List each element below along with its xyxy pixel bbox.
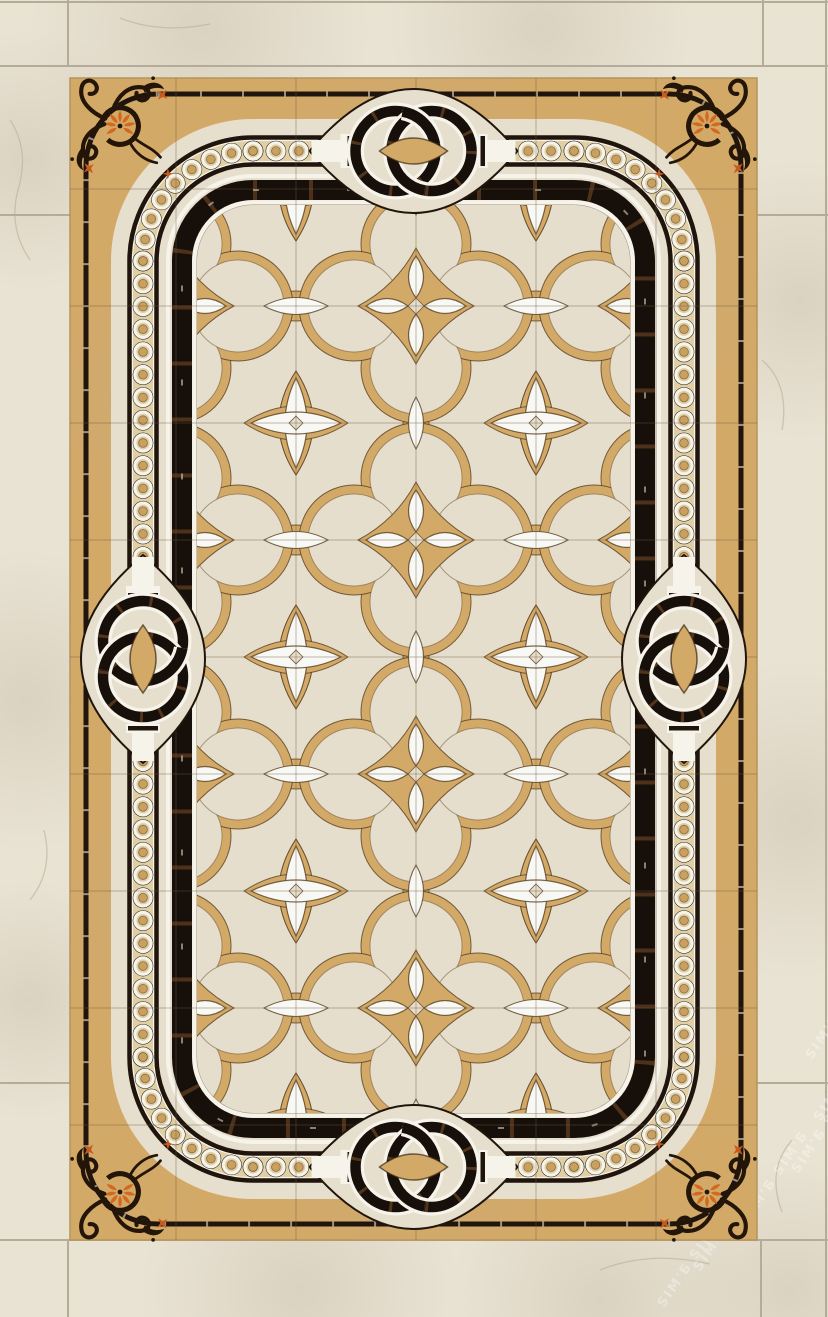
screenshot-root: SIM'Б SIM'БSIM'Б SIM'БSIM'Б SIM'БSIM'Б S…	[0, 0, 828, 1317]
field-pattern	[197, 205, 630, 1113]
marble-floor-medallion-rendering: SIM'Б SIM'БSIM'Б SIM'БSIM'Б SIM'БSIM'Б S…	[0, 0, 828, 1317]
